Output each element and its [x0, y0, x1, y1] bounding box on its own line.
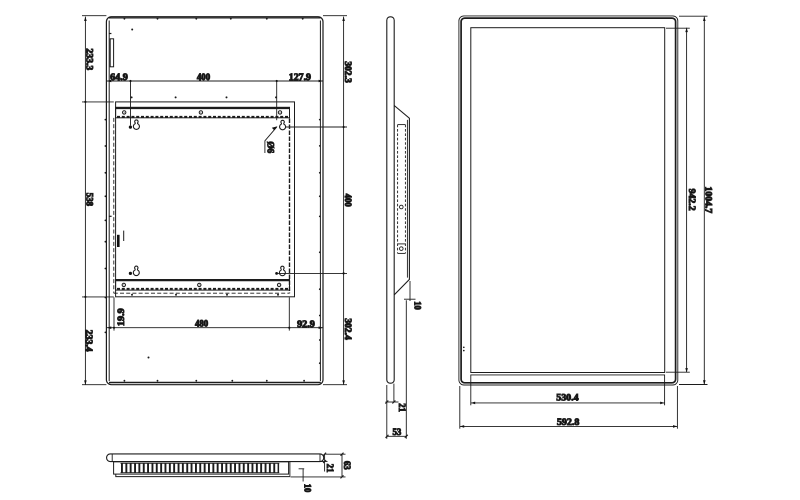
svg-text:400: 400: [197, 72, 210, 83]
svg-text:530.4: 530.4: [556, 392, 579, 403]
svg-text:233.4: 233.4: [83, 330, 94, 352]
svg-text:Ø6: Ø6: [264, 141, 274, 153]
svg-text:592.8: 592.8: [557, 417, 580, 428]
svg-text:1004.7: 1004.7: [702, 186, 713, 213]
svg-text:64.9: 64.9: [110, 72, 128, 83]
svg-text:538: 538: [83, 193, 94, 206]
svg-text:21: 21: [324, 464, 334, 473]
svg-text:302.3: 302.3: [342, 61, 353, 83]
svg-text:942.2: 942.2: [686, 189, 697, 211]
svg-text:10: 10: [301, 484, 311, 493]
svg-text:400: 400: [342, 194, 353, 207]
svg-text:10: 10: [411, 301, 421, 310]
svg-text:92.9: 92.9: [297, 319, 315, 330]
svg-text:53: 53: [393, 428, 402, 438]
svg-text:63: 63: [341, 461, 351, 470]
svg-text:127.9: 127.9: [289, 72, 311, 83]
svg-text:480: 480: [195, 319, 208, 330]
svg-text:19.9: 19.9: [116, 308, 127, 326]
svg-text:233.3: 233.3: [83, 48, 94, 70]
svg-text:21: 21: [396, 403, 406, 412]
svg-text:302.4: 302.4: [342, 318, 353, 340]
